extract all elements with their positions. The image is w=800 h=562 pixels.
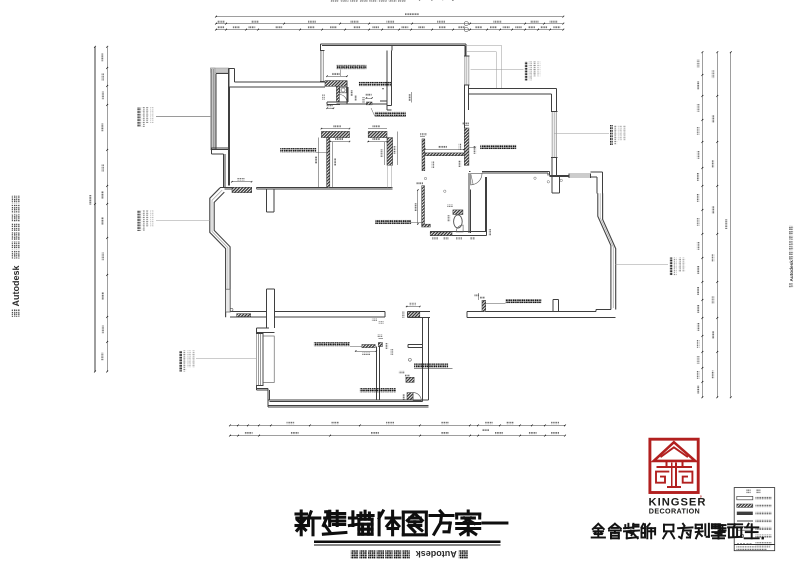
svg-text:DECORATION: DECORATION	[649, 507, 700, 516]
svg-text:’: ’	[700, 495, 702, 504]
svg-text:Autodesk: Autodesk	[789, 260, 794, 282]
svg-text:Autodesk: Autodesk	[11, 265, 21, 307]
svg-text:Autodesk: Autodesk	[415, 549, 457, 559]
svg-text:Autodesk: Autodesk	[416, 0, 456, 2]
